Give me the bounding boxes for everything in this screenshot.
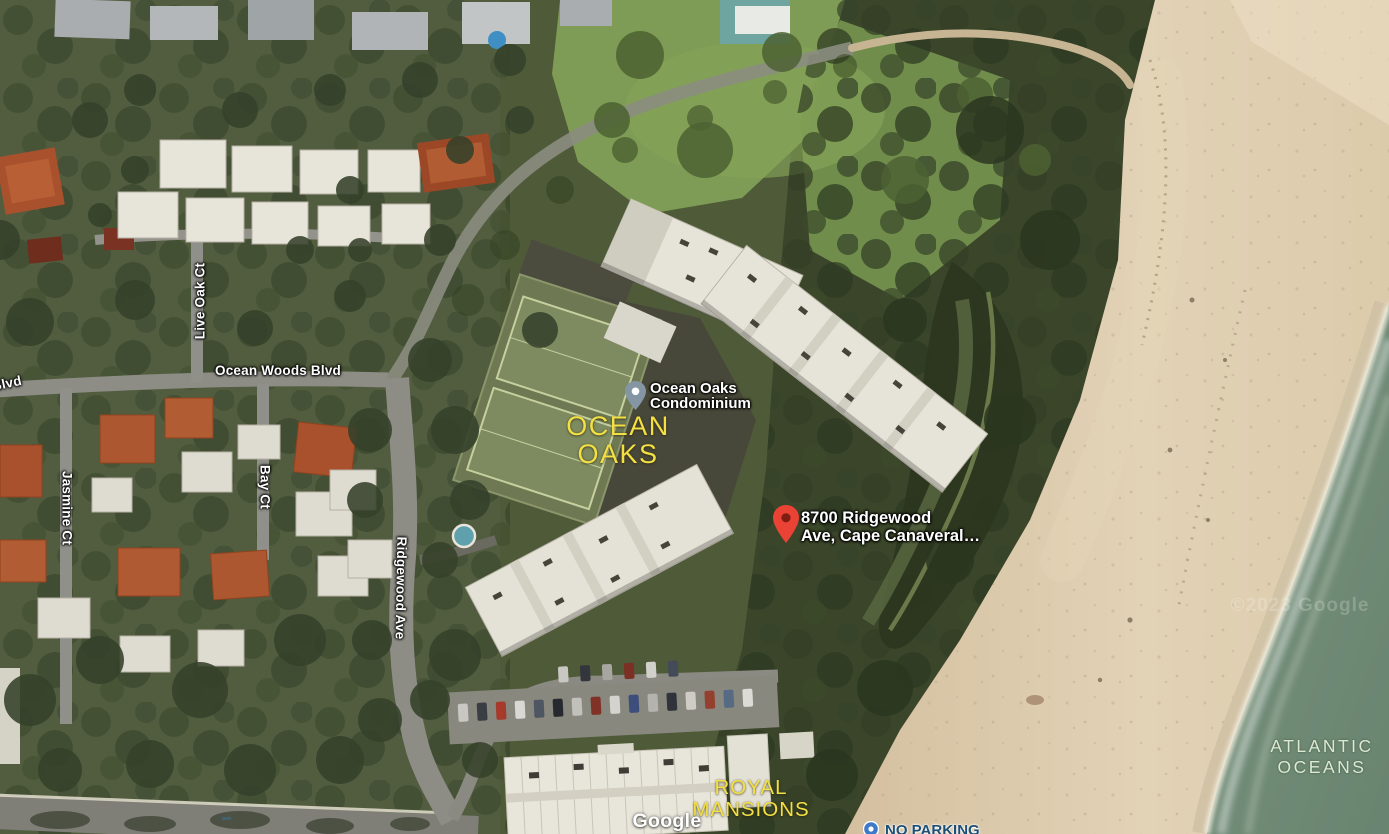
google-logo[interactable]: Google	[633, 810, 702, 833]
address-line1: 8700 Ridgewood	[801, 509, 980, 527]
poi-label-line2: Condominium	[650, 396, 751, 411]
area-label-ocean-oaks[interactable]: OCEAN OAKS	[566, 412, 670, 468]
area-label-line1: OCEAN	[566, 412, 670, 440]
poi-label-ocean-oaks-condominium[interactable]: Ocean Oaks Condominium	[650, 381, 751, 411]
red-map-pin-icon[interactable]	[773, 505, 799, 543]
water-label-atlantic-ocean[interactable]: ATLANTIC OCEANS	[1270, 736, 1373, 778]
imagery-watermark: ©2023 Google	[1231, 595, 1370, 617]
road-label-ridgewood-ave: Ridgewood Ave	[393, 536, 410, 639]
gray-map-pin-icon[interactable]	[625, 381, 646, 410]
area-label-line2: MANSIONS	[692, 799, 809, 821]
road-label-ocean-woods-blvd: Ocean Woods Blvd	[215, 363, 341, 378]
poi-label-line1: Ocean Oaks	[650, 381, 751, 396]
area-label-line2: OAKS	[566, 440, 670, 468]
partial-poi-label[interactable]: NO PARKING	[885, 822, 980, 834]
area-label-line1: ROYAL	[692, 777, 809, 799]
address-line2: Ave, Cape Canaveral…	[801, 527, 980, 545]
road-label-live-oak-ct: Live Oak Ct	[193, 263, 208, 339]
address-pin-label[interactable]: 8700 Ridgewood Ave, Cape Canaveral…	[801, 509, 980, 545]
road-label-jasmine-ct: Jasmine Ct	[60, 471, 75, 545]
water-label-line1: ATLANTIC	[1270, 736, 1373, 757]
area-label-royal-mansions[interactable]: ROYAL MANSIONS	[692, 777, 809, 821]
water-label-line2: OCEANS	[1270, 757, 1373, 778]
satellite-imagery	[0, 0, 1389, 834]
map-canvas[interactable]: Ocean Oaks Condominium OCEAN OAKS 8700 R…	[0, 0, 1389, 834]
road-label-bay-ct: Bay Ct	[258, 465, 273, 509]
blue-poi-dot-icon[interactable]	[863, 821, 879, 834]
